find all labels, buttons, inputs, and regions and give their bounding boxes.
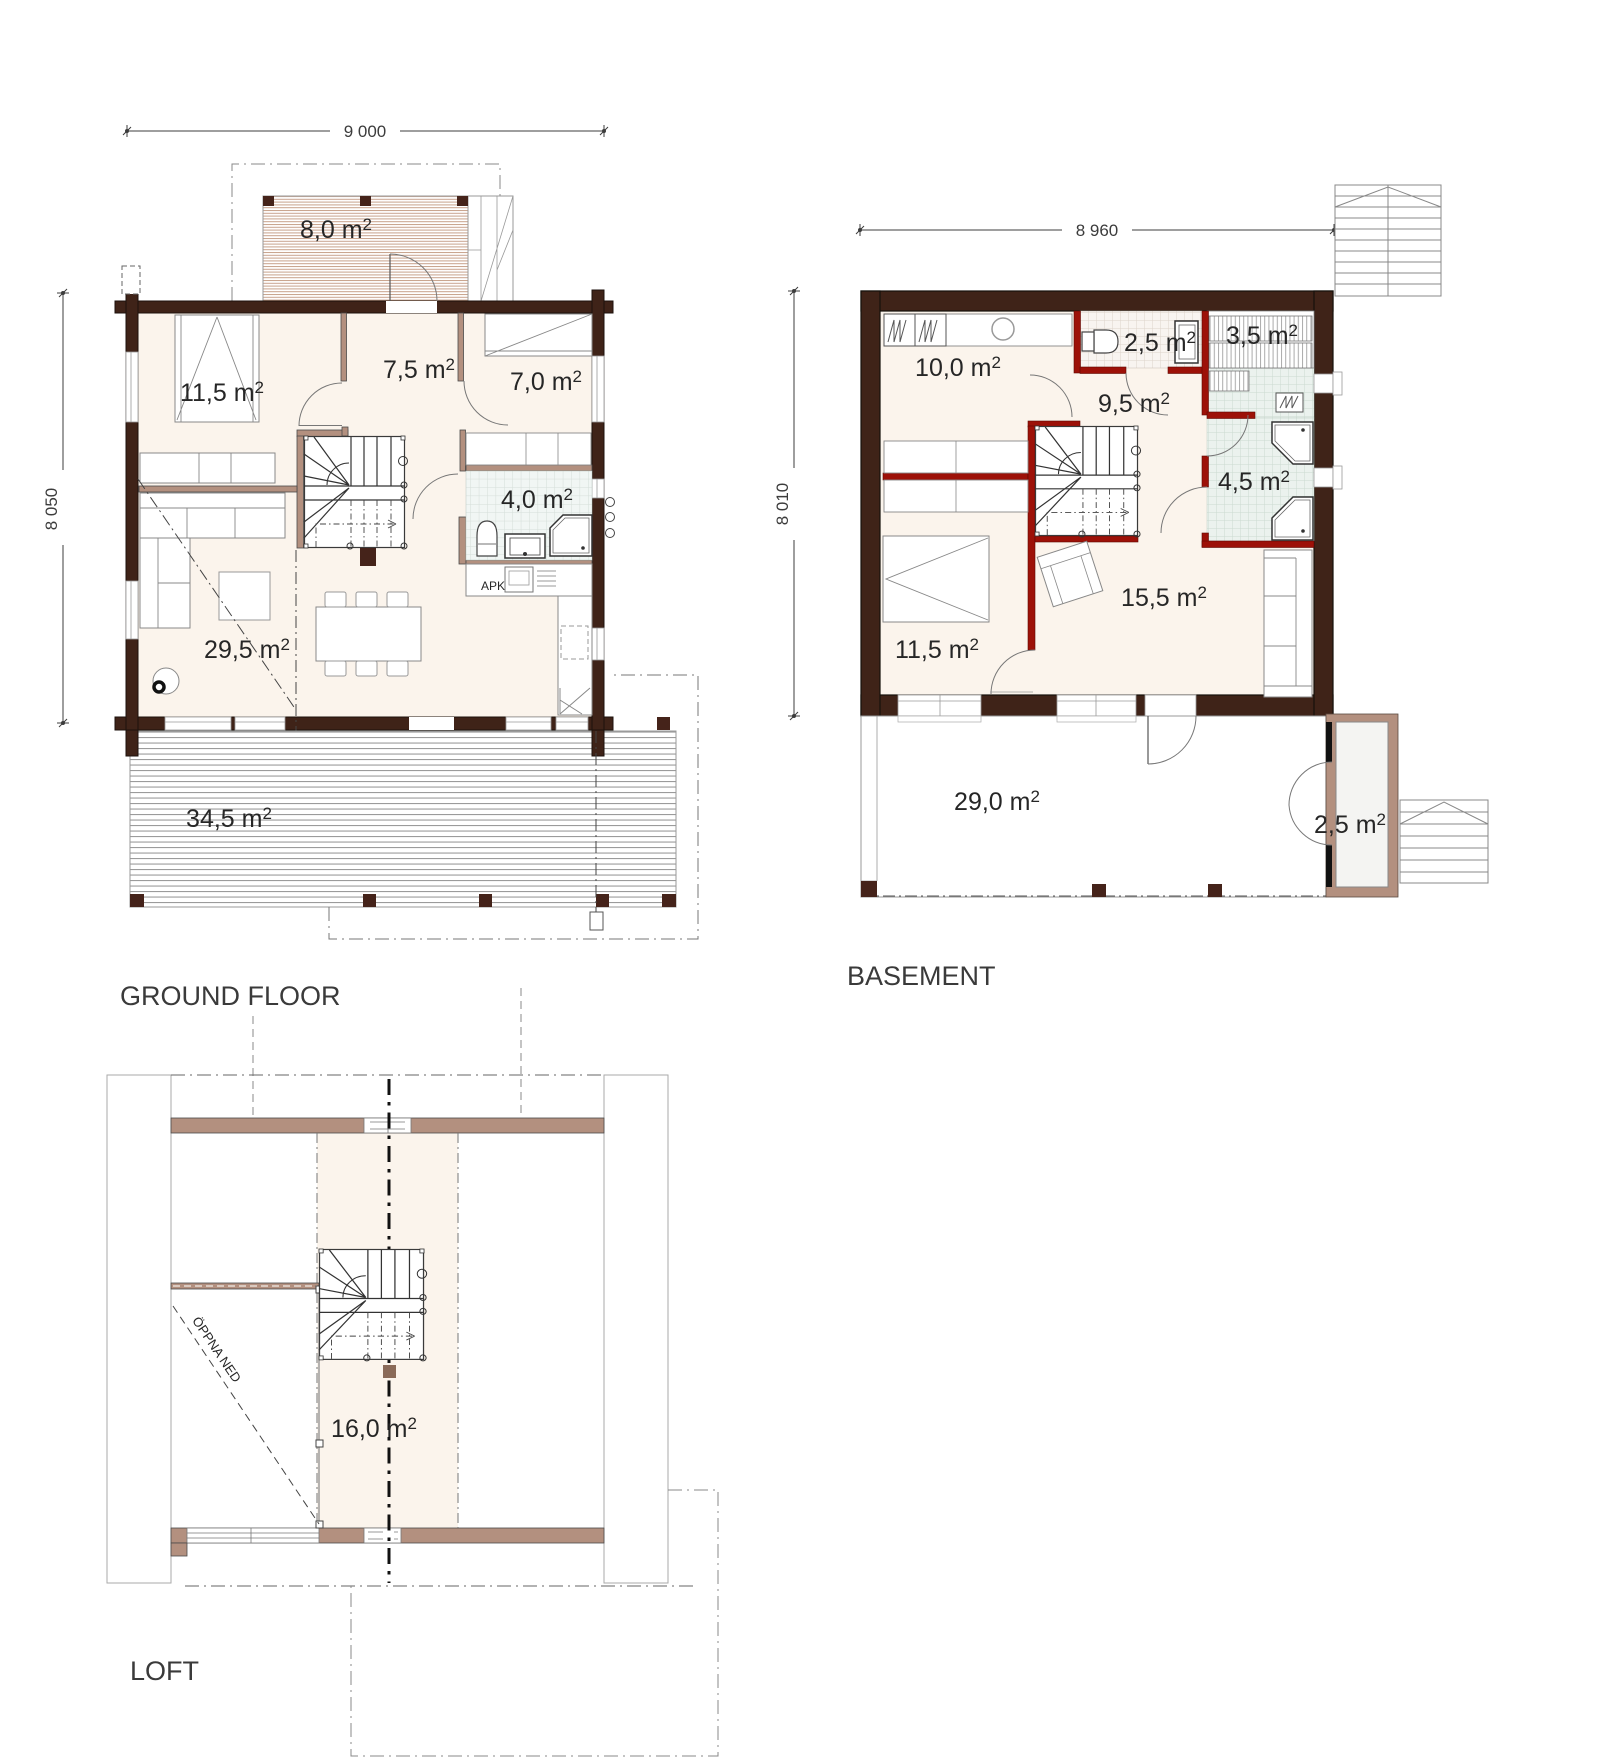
svg-text:2,5 m2: 2,5 m2 — [1124, 328, 1196, 357]
svg-text:7,0 m2: 7,0 m2 — [510, 367, 582, 396]
svg-text:11,5 m2: 11,5 m2 — [895, 635, 979, 664]
svg-text:8 050: 8 050 — [42, 488, 61, 531]
svg-text:29,0 m2: 29,0 m2 — [954, 787, 1040, 816]
svg-text:2,5 m2: 2,5 m2 — [1314, 810, 1386, 839]
svg-text:9 000: 9 000 — [344, 122, 387, 141]
svg-text:29,5 m2: 29,5 m2 — [204, 635, 290, 664]
svg-text:APK: APK — [481, 579, 505, 593]
svg-text:GROUND FLOOR: GROUND FLOOR — [120, 981, 341, 1011]
svg-text:16,0 m2: 16,0 m2 — [331, 1414, 417, 1443]
svg-text:11,5 m2: 11,5 m2 — [180, 378, 264, 407]
svg-text:8,0 m2: 8,0 m2 — [300, 215, 372, 244]
svg-text:4,5 m2: 4,5 m2 — [1218, 467, 1290, 496]
svg-text:10,0 m2: 10,0 m2 — [915, 353, 1001, 382]
svg-text:15,5 m2: 15,5 m2 — [1121, 583, 1207, 612]
svg-text:7,5 m2: 7,5 m2 — [383, 355, 455, 384]
svg-text:34,5 m2: 34,5 m2 — [186, 804, 272, 833]
svg-text:8 010: 8 010 — [773, 483, 792, 526]
svg-text:4,0 m2: 4,0 m2 — [501, 485, 573, 514]
svg-text:8 960: 8 960 — [1076, 221, 1119, 240]
svg-text:3,5 m2: 3,5 m2 — [1226, 321, 1298, 350]
svg-text:BASEMENT: BASEMENT — [847, 961, 996, 991]
svg-text:LOFT: LOFT — [130, 1656, 199, 1686]
svg-text:9,5 m2: 9,5 m2 — [1098, 389, 1170, 418]
